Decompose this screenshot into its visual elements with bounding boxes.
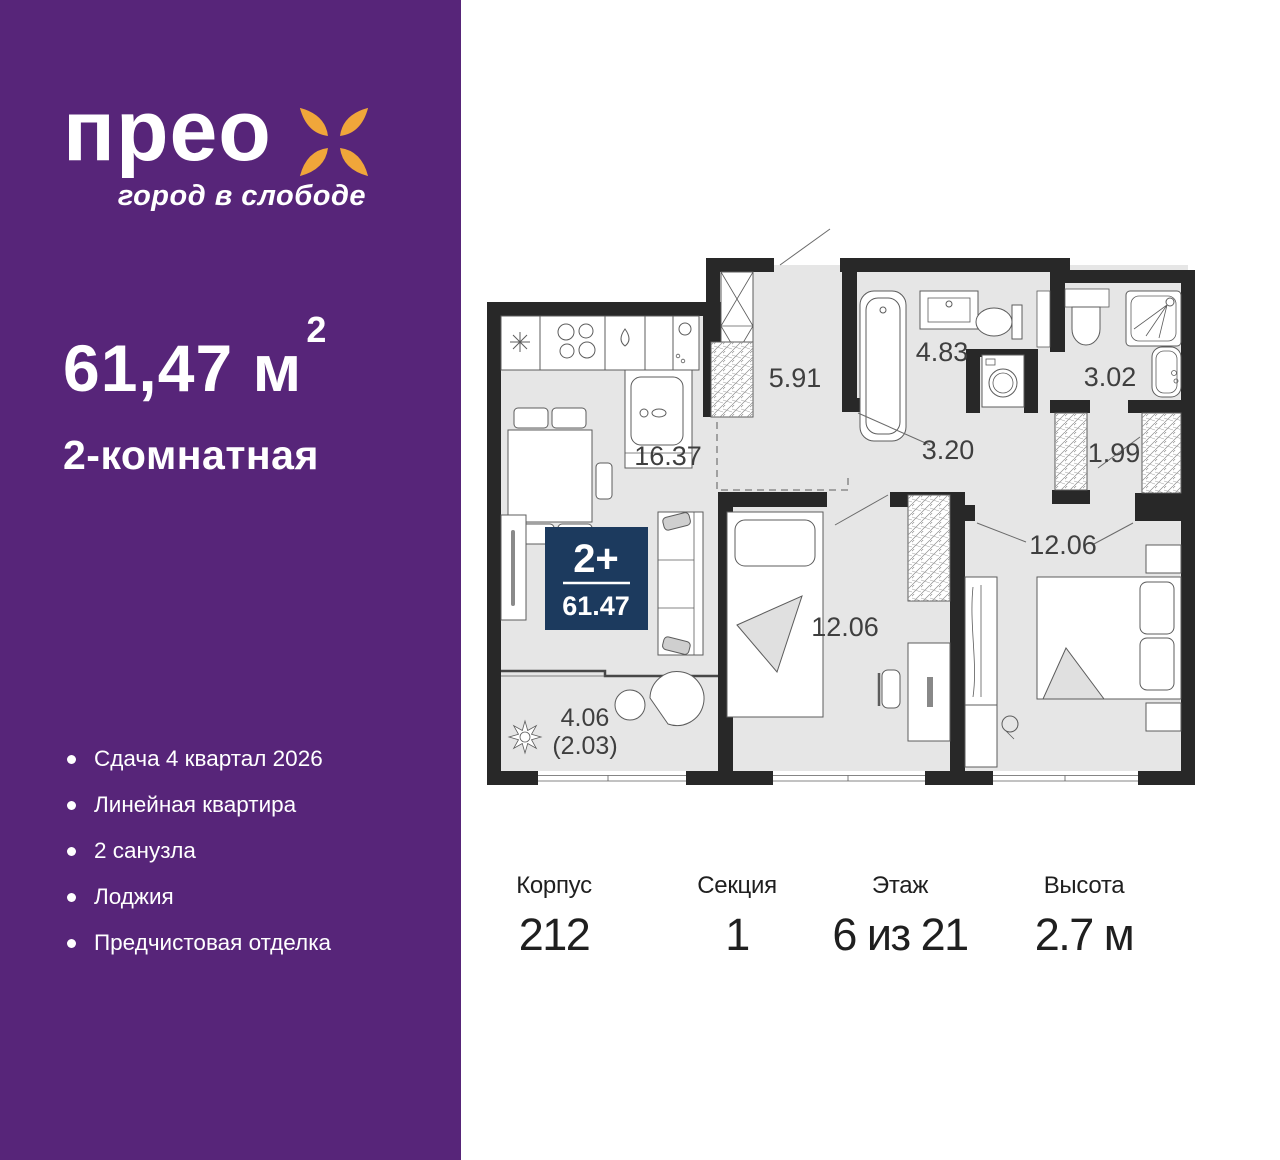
bathroom-sink [920,291,978,329]
double-bed [1037,577,1181,699]
list-item: 2 санузла [67,838,331,864]
apartment-badge: 2+ 61.47 [545,527,648,630]
fridge-snowflake-icon [510,332,530,352]
apartment-type: 2-комнатная [63,432,319,479]
room-label-hall: 5.91 [769,363,822,393]
room-label-bedroom1: 12.06 [811,612,879,642]
tv-stand [501,515,526,620]
room-label-corridor: 3.20 [922,435,975,465]
list-item: Лоджия [67,884,331,910]
room-label-bathroom: 4.83 [916,337,969,367]
brand-tagline: город в слободе [63,180,366,213]
area-value: 61,47 м [63,331,302,405]
room-label-wardrobe: 1.99 [1088,438,1141,468]
floor-plan: 16.37 5.91 4.83 3.20 3.02 1.99 12.06 12.… [480,225,1200,815]
bathtub [860,291,906,441]
badge-area: 61.47 [562,591,630,621]
brand-name: прео [63,88,272,174]
brand-logo: прео [63,88,386,194]
cistern-shelf [1065,289,1109,307]
apartment-card: прео город в слободе 61,47 м2 2-комнатна… [0,0,1280,1160]
bullet-dot-icon [67,755,76,764]
bullet-dot-icon [67,801,76,810]
feature-label: Сдача 4 квартал 2026 [94,746,323,772]
room-label-shower-room: 3.02 [1084,362,1137,392]
info-label: Высота [999,872,1169,900]
washing-machine [982,355,1024,407]
single-bed [727,512,823,717]
bullet-dot-icon [67,939,76,948]
info-floor: Этаж 6 из 21 [815,872,985,961]
bedroom1-window [773,771,925,785]
info-label: Этаж [815,872,985,900]
bedroom2-wardrobe [965,577,997,705]
sidebar: прео город в слободе 61,47 м2 2-комнатна… [0,0,461,1160]
flower-logo-icon [282,90,386,194]
shower-toilet [1072,307,1100,345]
info-value: 212 [469,909,639,961]
room-label-kitchen: 16.37 [634,441,702,471]
info-value: 6 из 21 [815,909,985,961]
loggia-plant-icon [509,721,541,753]
area-superscript: 2 [306,309,327,350]
feature-label: Предчистовая отделка [94,930,331,956]
shower-cabin [1126,291,1181,346]
duct-shaft [1037,291,1050,347]
info-section: Секция 1 [652,872,822,961]
apartment-area: 61,47 м2 [63,330,323,406]
windows [538,771,1138,785]
info-label: Секция [652,872,822,900]
list-item: Предчистовая отделка [67,930,331,956]
nightstand [1146,703,1181,731]
loggia-table [615,690,645,720]
bullet-dot-icon [67,847,76,856]
room-label-loggia-reduced: (2.03) [552,732,617,760]
hall-wardrobe [711,342,753,417]
shower-sink [1152,347,1181,397]
room-label-bedroom2: 12.06 [1029,530,1097,560]
info-building: Корпус 212 [469,872,639,961]
badge-rooms: 2+ [573,537,619,581]
room-label-loggia: 4.06 [561,704,610,732]
list-item: Сдача 4 квартал 2026 [67,746,331,772]
bedroom1-wardrobe [908,495,950,601]
sofa [658,512,703,655]
nightstand [1146,545,1181,573]
feature-label: Лоджия [94,884,174,910]
feature-list: Сдача 4 квартал 2026 Линейная квартира 2… [67,746,331,976]
apartment-info-row: Корпус 212 Секция 1 Этаж 6 из 21 Высота … [461,872,1280,972]
loggia-window [538,771,686,785]
info-value: 1 [652,909,822,961]
info-height: Высота 2.7 м [999,872,1169,961]
feature-label: 2 санузла [94,838,196,864]
bullet-dot-icon [67,893,76,902]
list-item: Линейная квартира [67,792,331,818]
bedroom2-window [993,771,1138,785]
feature-label: Линейная квартира [94,792,296,818]
main-content: 16.37 5.91 4.83 3.20 3.02 1.99 12.06 12.… [461,0,1280,1160]
info-value: 2.7 м [999,909,1169,961]
kitchen-counter [501,316,699,370]
info-label: Корпус [469,872,639,900]
